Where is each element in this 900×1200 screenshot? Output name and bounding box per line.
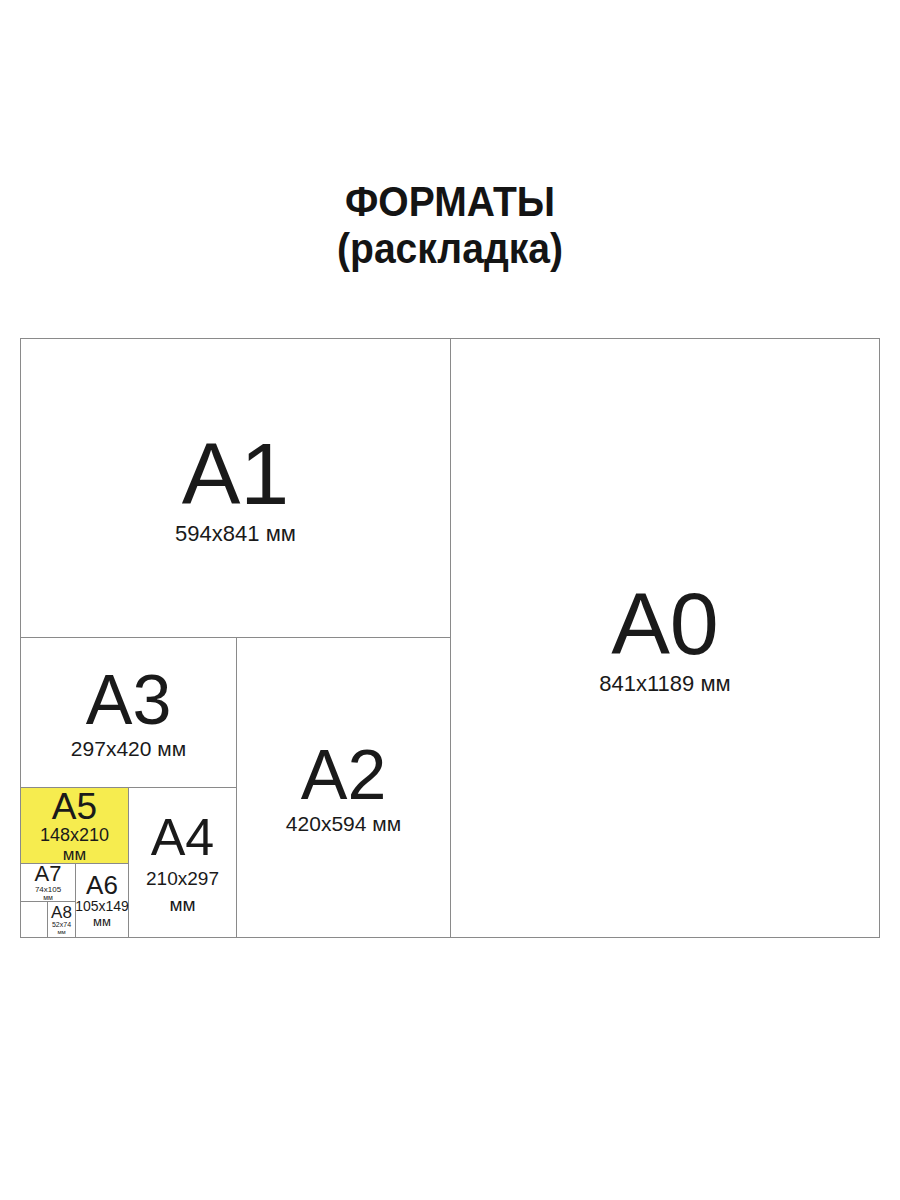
format-box-a8: A8 52x74 мм [47,901,76,938]
format-box-a5-highlighted: A5 148x210 мм [20,787,129,864]
page-title: ФОРМАТЫ (раскладка) [32,178,869,272]
format-dims-a5: 148x210 [40,826,109,845]
format-label-a2: A2 [301,739,387,812]
format-label-a5: A5 [52,788,97,826]
format-dims-a2: 420x594 мм [286,812,401,836]
format-label-a6: A6 [86,872,118,899]
format-unit-a8: мм [57,929,65,936]
format-label-a8: A8 [51,904,72,921]
format-label-a4: A4 [151,810,215,865]
format-box-a0: A0 841x1189 мм [450,338,880,938]
format-unit-a5: мм [63,846,86,864]
format-unit-a4: мм [169,893,195,916]
format-unit-a6: мм [93,914,111,929]
format-label-a1: A1 [182,429,290,519]
format-box-a1: A1 594x841 мм [20,338,451,638]
empty-corner-cell [20,901,48,938]
page: ФОРМАТЫ (раскладка) A1 594x841 мм A0 841… [0,0,900,1200]
format-box-a2: A2 420x594 мм [236,637,451,938]
format-dims-a1: 594x841 мм [175,521,296,547]
format-dims-a6: 105x149 [75,899,129,914]
format-box-a4: A4 210x297 мм [128,787,237,938]
format-label-a0: A0 [611,579,719,669]
format-box-a3: A3 297x420 мм [20,637,237,788]
format-box-a6: A6 105x149 мм [75,863,129,938]
format-label-a7: A7 [35,863,62,885]
title-line-1: ФОРМАТЫ [32,178,869,225]
format-dims-a4: 210x297 [146,867,219,890]
format-dims-a3: 297x420 мм [71,737,186,761]
format-dims-a0: 841x1189 мм [599,671,730,697]
format-box-a7: A7 74x105 мм [20,863,76,902]
format-label-a3: A3 [86,664,172,737]
paper-formats-diagram: A1 594x841 мм A0 841x1189 мм A3 297x420 … [20,338,880,938]
format-dims-a7: 74x105 [35,885,61,894]
title-line-2: (раскладка) [32,225,869,272]
format-dims-a8: 52x74 [52,921,71,929]
